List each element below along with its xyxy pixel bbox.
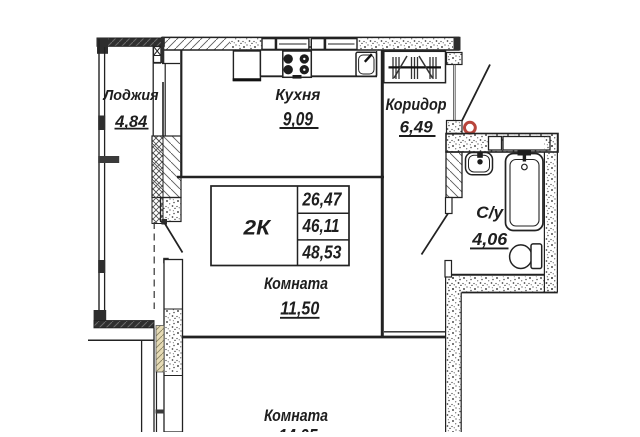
svg-text:11,50: 11,50 (280, 297, 320, 318)
svg-text:Комната: Комната (264, 274, 328, 293)
svg-text:4,06: 4,06 (471, 229, 507, 249)
svg-text:Коридор: Коридор (386, 95, 447, 114)
svg-text:26,47: 26,47 (302, 189, 343, 210)
svg-text:48,53: 48,53 (302, 241, 342, 262)
svg-text:6,49: 6,49 (400, 118, 434, 136)
svg-text:Комната: Комната (264, 406, 328, 425)
svg-text:Лоджия: Лоджия (103, 88, 159, 104)
svg-text:С/у: С/у (476, 204, 504, 222)
svg-text:2К: 2К (242, 216, 271, 240)
svg-text:Кухня: Кухня (275, 87, 320, 104)
svg-text:46,11: 46,11 (302, 215, 340, 236)
svg-text:14,05: 14,05 (279, 425, 319, 432)
